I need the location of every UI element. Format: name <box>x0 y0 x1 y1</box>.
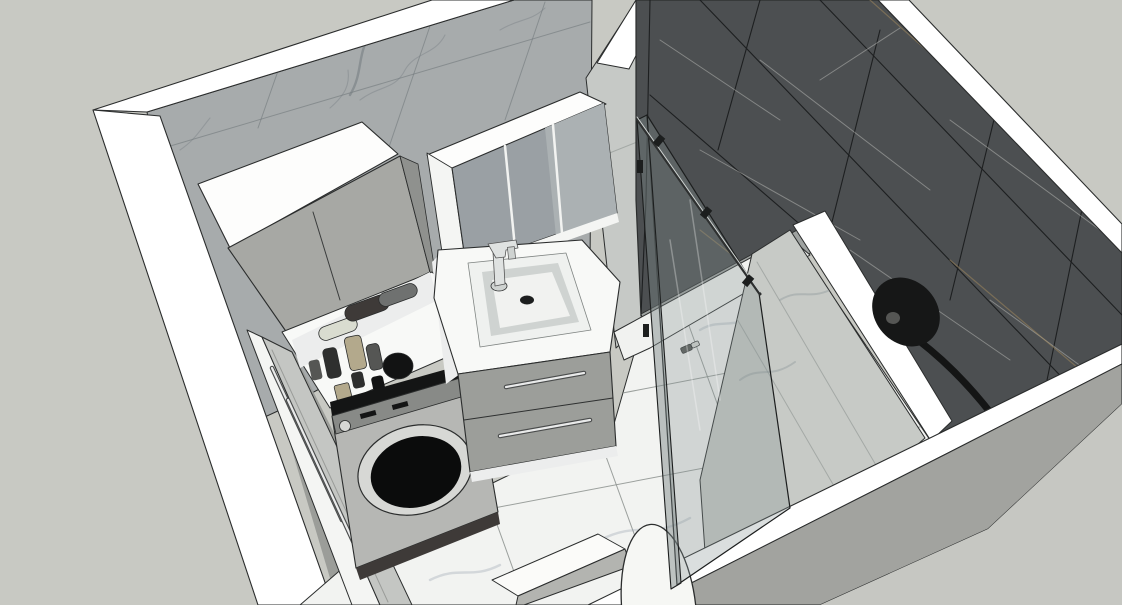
washer-knob <box>340 421 351 432</box>
shower-arm-elbow <box>886 312 900 324</box>
wall-hinge <box>637 160 643 173</box>
basin-drain <box>520 296 534 305</box>
faucet-tip <box>507 247 515 260</box>
wall-hinge <box>643 324 649 337</box>
jar <box>383 353 413 379</box>
3d-viewport[interactable] <box>0 0 1122 605</box>
bathroom-render <box>0 0 1122 605</box>
